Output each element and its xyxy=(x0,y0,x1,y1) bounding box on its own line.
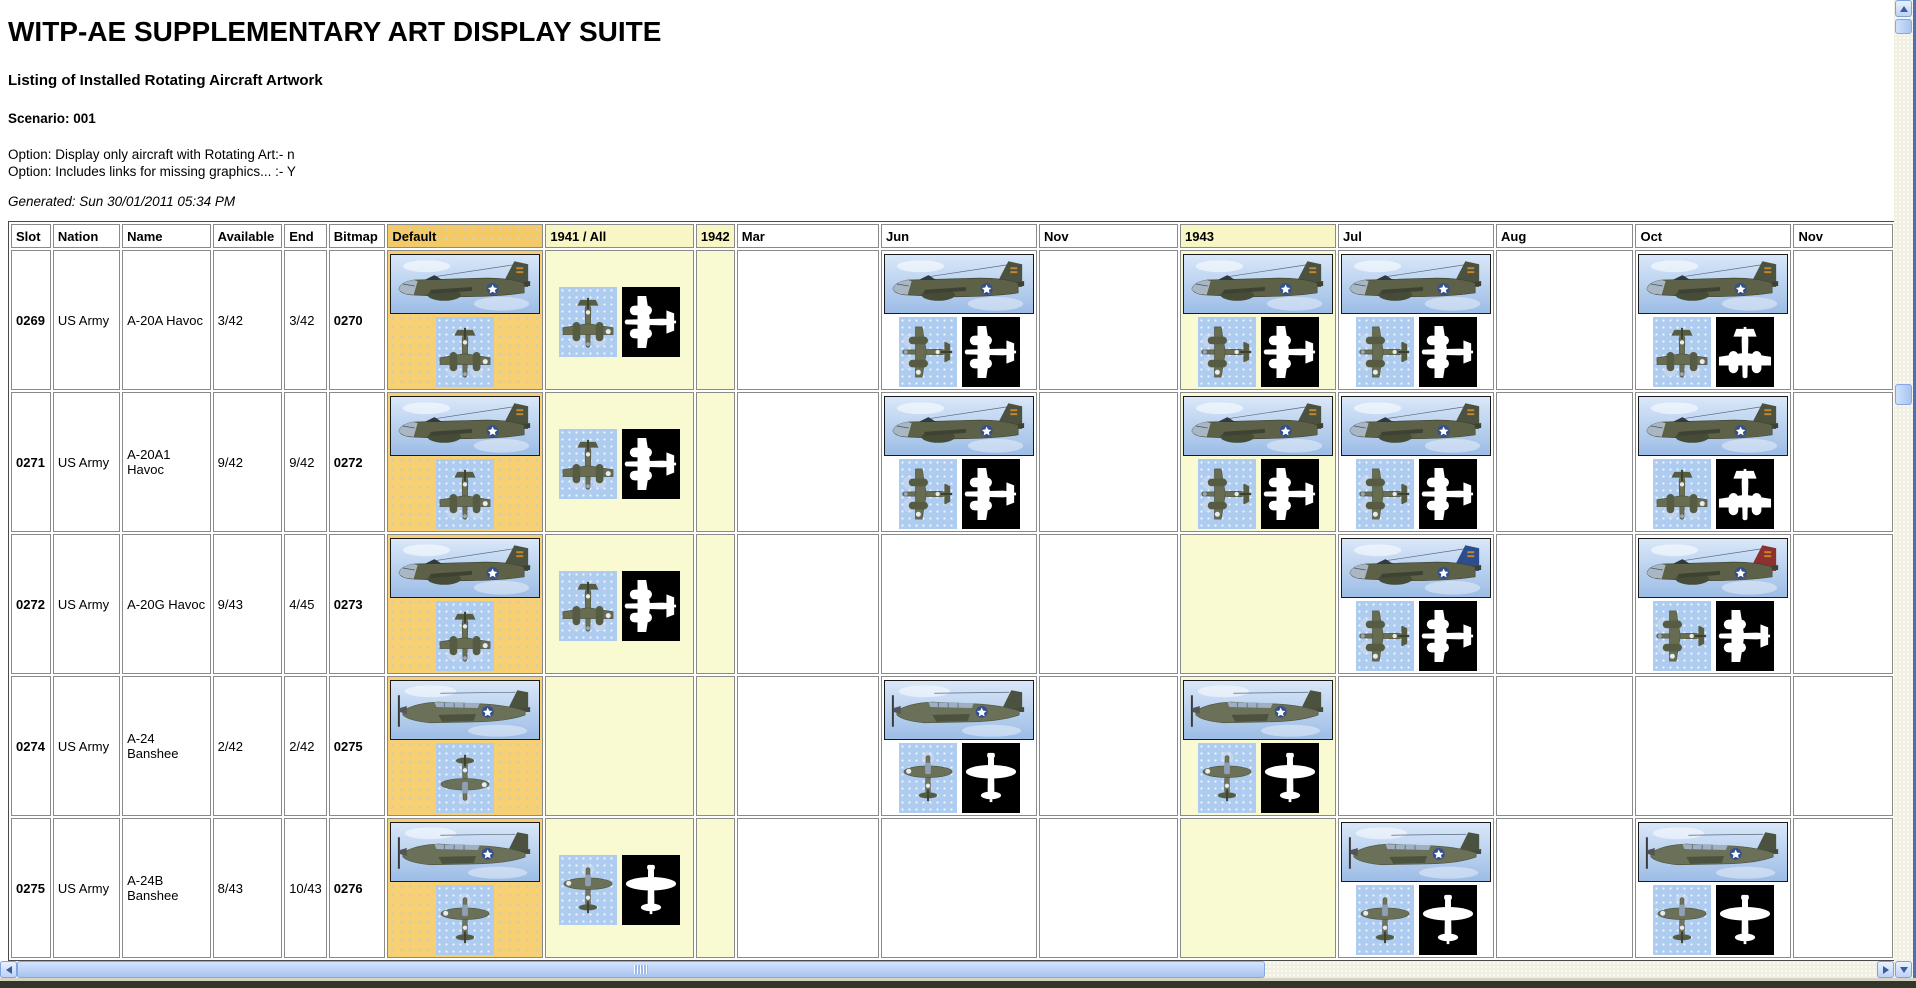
art-cell-aug xyxy=(1496,250,1633,390)
down-arrow-icon xyxy=(1900,967,1908,973)
horizontal-scrollbar[interactable] xyxy=(0,961,1894,978)
bitmap-cell: 0270 xyxy=(329,250,386,390)
nation-cell: US Army xyxy=(53,534,120,674)
aircraft-silhouette-art xyxy=(1716,601,1774,671)
art-cell-aug xyxy=(1496,818,1633,958)
generated-timestamp: Generated: Sun 30/01/2011 05:34 PM xyxy=(8,194,1896,209)
art-cell-default xyxy=(387,534,543,674)
art-pair xyxy=(390,317,540,387)
art-cell-jul xyxy=(1338,250,1494,390)
vertical-scrollbar-thumb-secondary[interactable] xyxy=(1895,19,1912,34)
end-cell: 10/43 xyxy=(284,818,327,958)
available-cell: 3/42 xyxy=(213,250,283,390)
column-header-nov2: Nov xyxy=(1793,224,1893,248)
art-cell-y1942 xyxy=(696,676,735,816)
art-cell-y1943 xyxy=(1180,250,1336,390)
column-header-jul: Jul xyxy=(1338,224,1494,248)
column-header-bitmap: Bitmap xyxy=(329,224,386,248)
vertical-scrollbar-thumb[interactable] xyxy=(1895,384,1912,405)
art-pair xyxy=(548,287,691,357)
art-pair xyxy=(390,459,540,529)
aircraft-silhouette-art xyxy=(1716,885,1774,955)
aircraft-silhouette-art xyxy=(1419,317,1477,387)
aircraft-side-view-art xyxy=(390,538,540,598)
art-cell-oct xyxy=(1635,534,1791,674)
art-cell-jul xyxy=(1338,818,1494,958)
bitmap-cell: 0275 xyxy=(329,676,386,816)
nation-cell: US Army xyxy=(53,392,120,532)
aircraft-top-view-art xyxy=(1653,459,1711,529)
art-pair xyxy=(390,601,540,671)
aircraft-silhouette-art xyxy=(1261,743,1319,813)
art-cell-default xyxy=(387,676,543,816)
aircraft-silhouette-art xyxy=(622,571,680,641)
art-cell-jun xyxy=(881,250,1037,390)
aircraft-side-view-art xyxy=(1638,822,1788,882)
scroll-down-button[interactable] xyxy=(1895,961,1912,978)
art-cell-nov1 xyxy=(1039,250,1178,390)
column-header-y1942: 1942 xyxy=(696,224,735,248)
aircraft-top-view-art xyxy=(1653,885,1711,955)
available-cell: 8/43 xyxy=(213,818,283,958)
aircraft-side-view-art xyxy=(1341,822,1491,882)
end-cell: 2/42 xyxy=(284,676,327,816)
option-rotating-art: Option: Display only aircraft with Rotat… xyxy=(8,146,1896,163)
art-cell-aug xyxy=(1496,392,1633,532)
column-header-oct: Oct xyxy=(1635,224,1791,248)
art-cell-nov1 xyxy=(1039,392,1178,532)
aircraft-silhouette-art xyxy=(622,855,680,925)
art-cell-nov1 xyxy=(1039,534,1178,674)
aircraft-top-view-art xyxy=(899,317,957,387)
art-cell-jun xyxy=(881,676,1037,816)
table-row: 0274US ArmyA-24 Banshee2/422/420275 xyxy=(11,676,1893,816)
art-pair xyxy=(1638,459,1788,529)
slot-cell: 0274 xyxy=(11,676,51,816)
nation-cell: US Army xyxy=(53,250,120,390)
column-header-nov1: Nov xyxy=(1039,224,1178,248)
aircraft-side-view-art xyxy=(1638,538,1788,598)
art-cell-oct xyxy=(1635,676,1791,816)
column-header-y1941: 1941 / All xyxy=(545,224,694,248)
aircraft-side-view-art xyxy=(1638,254,1788,314)
column-header-aug: Aug xyxy=(1496,224,1633,248)
art-pair xyxy=(390,885,540,955)
aircraft-side-view-art xyxy=(884,680,1034,740)
art-cell-y1942 xyxy=(696,534,735,674)
aircraft-top-view-art xyxy=(436,459,494,529)
end-cell: 9/42 xyxy=(284,392,327,532)
table-body: 0269US ArmyA-20A Havoc3/423/4202700271US… xyxy=(11,250,1893,958)
art-cell-mar xyxy=(737,818,879,958)
available-cell: 2/42 xyxy=(213,676,283,816)
aircraft-top-view-art xyxy=(1198,743,1256,813)
name-cell: A-24 Banshee xyxy=(122,676,211,816)
aircraft-silhouette-art xyxy=(1261,459,1319,529)
art-cell-default xyxy=(387,392,543,532)
column-header-name: Name xyxy=(122,224,211,248)
art-cell-nov2 xyxy=(1793,818,1893,958)
aircraft-top-view-art xyxy=(436,601,494,671)
art-cell-jul xyxy=(1338,392,1494,532)
art-pair xyxy=(1638,601,1788,671)
aircraft-silhouette-art xyxy=(1716,317,1774,387)
aircraft-top-view-art xyxy=(559,571,617,641)
column-header-mar: Mar xyxy=(737,224,879,248)
column-header-available: Available xyxy=(213,224,283,248)
end-cell: 3/42 xyxy=(284,250,327,390)
aircraft-silhouette-art xyxy=(1419,601,1477,671)
art-cell-oct xyxy=(1635,818,1791,958)
aircraft-silhouette-art xyxy=(962,459,1020,529)
aircraft-silhouette-art xyxy=(622,287,680,357)
art-pair xyxy=(1341,459,1491,529)
art-cell-aug xyxy=(1496,676,1633,816)
aircraft-top-view-art xyxy=(1198,317,1256,387)
available-cell: 9/43 xyxy=(213,534,283,674)
aircraft-side-view-art xyxy=(884,254,1034,314)
aircraft-side-view-art xyxy=(390,396,540,456)
column-header-default: Default xyxy=(387,224,543,248)
art-cell-oct xyxy=(1635,250,1791,390)
art-cell-default xyxy=(387,250,543,390)
aircraft-silhouette-art xyxy=(1419,459,1477,529)
slot-cell: 0269 xyxy=(11,250,51,390)
aircraft-top-view-art xyxy=(436,743,494,813)
art-cell-y1941 xyxy=(545,392,694,532)
art-pair xyxy=(1183,459,1333,529)
aircraft-top-view-art xyxy=(559,287,617,357)
nation-cell: US Army xyxy=(53,676,120,816)
art-cell-nov1 xyxy=(1039,818,1178,958)
art-pair xyxy=(884,459,1034,529)
aircraft-top-view-art xyxy=(1356,317,1414,387)
art-cell-jul xyxy=(1338,676,1494,816)
art-cell-mar xyxy=(737,534,879,674)
aircraft-top-view-art xyxy=(1356,459,1414,529)
slot-cell: 0272 xyxy=(11,534,51,674)
art-cell-jun xyxy=(881,534,1037,674)
horizontal-scrollbar-thumb[interactable] xyxy=(17,961,1265,978)
art-cell-mar xyxy=(737,250,879,390)
art-cell-nov1 xyxy=(1039,676,1178,816)
available-cell: 9/42 xyxy=(213,392,283,532)
column-header-jun: Jun xyxy=(881,224,1037,248)
vertical-scrollbar[interactable] xyxy=(1894,0,1913,978)
art-cell-mar xyxy=(737,392,879,532)
art-pair xyxy=(390,743,540,813)
scroll-right-button[interactable] xyxy=(1877,961,1894,978)
art-cell-y1941 xyxy=(545,250,694,390)
art-cell-jul xyxy=(1338,534,1494,674)
bitmap-cell: 0276 xyxy=(329,818,386,958)
page-subtitle: Listing of Installed Rotating Aircraft A… xyxy=(8,72,1896,89)
aircraft-side-view-art xyxy=(390,822,540,882)
aircraft-top-view-art xyxy=(559,429,617,499)
aircraft-top-view-art xyxy=(899,459,957,529)
column-header-slot: Slot xyxy=(11,224,51,248)
art-cell-y1943 xyxy=(1180,392,1336,532)
aircraft-silhouette-art xyxy=(962,317,1020,387)
aircraft-top-view-art xyxy=(1198,459,1256,529)
aircraft-side-view-art xyxy=(1341,396,1491,456)
window-bottom-strip xyxy=(0,981,1916,988)
art-cell-mar xyxy=(737,676,879,816)
artwork-table: SlotNationNameAvailableEndBitmapDefault1… xyxy=(8,221,1896,961)
table-row: 0272US ArmyA-20G Havoc9/434/450273 xyxy=(11,534,1893,674)
art-cell-y1942 xyxy=(696,250,735,390)
nation-cell: US Army xyxy=(53,818,120,958)
aircraft-side-view-art xyxy=(390,254,540,314)
art-pair xyxy=(1341,885,1491,955)
art-cell-y1941 xyxy=(545,818,694,958)
aircraft-silhouette-art xyxy=(622,429,680,499)
bitmap-cell: 0273 xyxy=(329,534,386,674)
art-cell-oct xyxy=(1635,392,1791,532)
art-cell-y1941 xyxy=(545,676,694,816)
art-cell-nov2 xyxy=(1793,250,1893,390)
aircraft-top-view-art xyxy=(899,743,957,813)
column-header-y1943: 1943 xyxy=(1180,224,1336,248)
art-cell-jun xyxy=(881,392,1037,532)
aircraft-side-view-art xyxy=(1183,396,1333,456)
art-cell-nov2 xyxy=(1793,676,1893,816)
art-cell-nov2 xyxy=(1793,392,1893,532)
aircraft-top-view-art xyxy=(436,885,494,955)
aircraft-silhouette-art xyxy=(1716,459,1774,529)
aircraft-side-view-art xyxy=(884,396,1034,456)
table-header-row: SlotNationNameAvailableEndBitmapDefault1… xyxy=(11,224,1893,248)
art-cell-y1943 xyxy=(1180,676,1336,816)
aircraft-top-view-art xyxy=(1356,885,1414,955)
art-pair xyxy=(548,855,691,925)
art-pair xyxy=(1183,317,1333,387)
page-content: WITP-AE SUPPLEMENTARY ART DISPLAY SUITE … xyxy=(0,0,1896,978)
aircraft-silhouette-art xyxy=(1419,885,1477,955)
aircraft-silhouette-art xyxy=(1261,317,1319,387)
art-cell-y1943 xyxy=(1180,818,1336,958)
name-cell: A-24B Banshee xyxy=(122,818,211,958)
aircraft-side-view-art xyxy=(1341,538,1491,598)
art-pair xyxy=(548,571,691,641)
aircraft-side-view-art xyxy=(1183,680,1333,740)
end-cell: 4/45 xyxy=(284,534,327,674)
table-row: 0271US ArmyA-20A1 Havoc9/429/420272 xyxy=(11,392,1893,532)
slot-cell: 0275 xyxy=(11,818,51,958)
scenario-label: Scenario: 001 xyxy=(8,111,1896,126)
art-pair xyxy=(884,317,1034,387)
art-cell-y1941 xyxy=(545,534,694,674)
art-cell-aug xyxy=(1496,534,1633,674)
name-cell: A-20A1 Havoc xyxy=(122,392,211,532)
scroll-up-button[interactable] xyxy=(1895,0,1912,17)
left-arrow-icon xyxy=(6,966,12,974)
up-arrow-icon xyxy=(1900,6,1908,12)
art-cell-nov2 xyxy=(1793,534,1893,674)
name-cell: A-20G Havoc xyxy=(122,534,211,674)
art-cell-default xyxy=(387,818,543,958)
art-pair xyxy=(548,429,691,499)
table-row: 0275US ArmyA-24B Banshee8/4310/430276 xyxy=(11,818,1893,958)
table-row: 0269US ArmyA-20A Havoc3/423/420270 xyxy=(11,250,1893,390)
art-pair xyxy=(1638,885,1788,955)
name-cell: A-20A Havoc xyxy=(122,250,211,390)
aircraft-top-view-art xyxy=(1653,601,1711,671)
art-pair xyxy=(1183,743,1333,813)
option-missing-graphics: Option: Includes links for missing graph… xyxy=(8,163,1896,180)
aircraft-top-view-art xyxy=(436,317,494,387)
art-cell-y1942 xyxy=(696,392,735,532)
aircraft-side-view-art xyxy=(390,680,540,740)
aircraft-side-view-art xyxy=(1341,254,1491,314)
aircraft-side-view-art xyxy=(1638,396,1788,456)
aircraft-top-view-art xyxy=(559,855,617,925)
art-pair xyxy=(1341,317,1491,387)
right-arrow-icon xyxy=(1883,966,1889,974)
options-block: Option: Display only aircraft with Rotat… xyxy=(8,146,1896,180)
art-cell-y1942 xyxy=(696,818,735,958)
art-cell-y1943 xyxy=(1180,534,1336,674)
art-pair xyxy=(1638,317,1788,387)
page-title: WITP-AE SUPPLEMENTARY ART DISPLAY SUITE xyxy=(8,16,1896,48)
bitmap-cell: 0272 xyxy=(329,392,386,532)
scrollbar-grip xyxy=(634,965,648,974)
scroll-left-button[interactable] xyxy=(0,961,17,978)
aircraft-top-view-art xyxy=(1356,601,1414,671)
slot-cell: 0271 xyxy=(11,392,51,532)
column-header-end: End xyxy=(284,224,327,248)
aircraft-side-view-art xyxy=(1183,254,1333,314)
aircraft-top-view-art xyxy=(1653,317,1711,387)
art-pair xyxy=(884,743,1034,813)
art-display-suite-page: WITP-AE SUPPLEMENTARY ART DISPLAY SUITE … xyxy=(0,0,1916,988)
art-pair xyxy=(1341,601,1491,671)
aircraft-silhouette-art xyxy=(962,743,1020,813)
art-cell-jun xyxy=(881,818,1037,958)
column-header-nation: Nation xyxy=(53,224,120,248)
